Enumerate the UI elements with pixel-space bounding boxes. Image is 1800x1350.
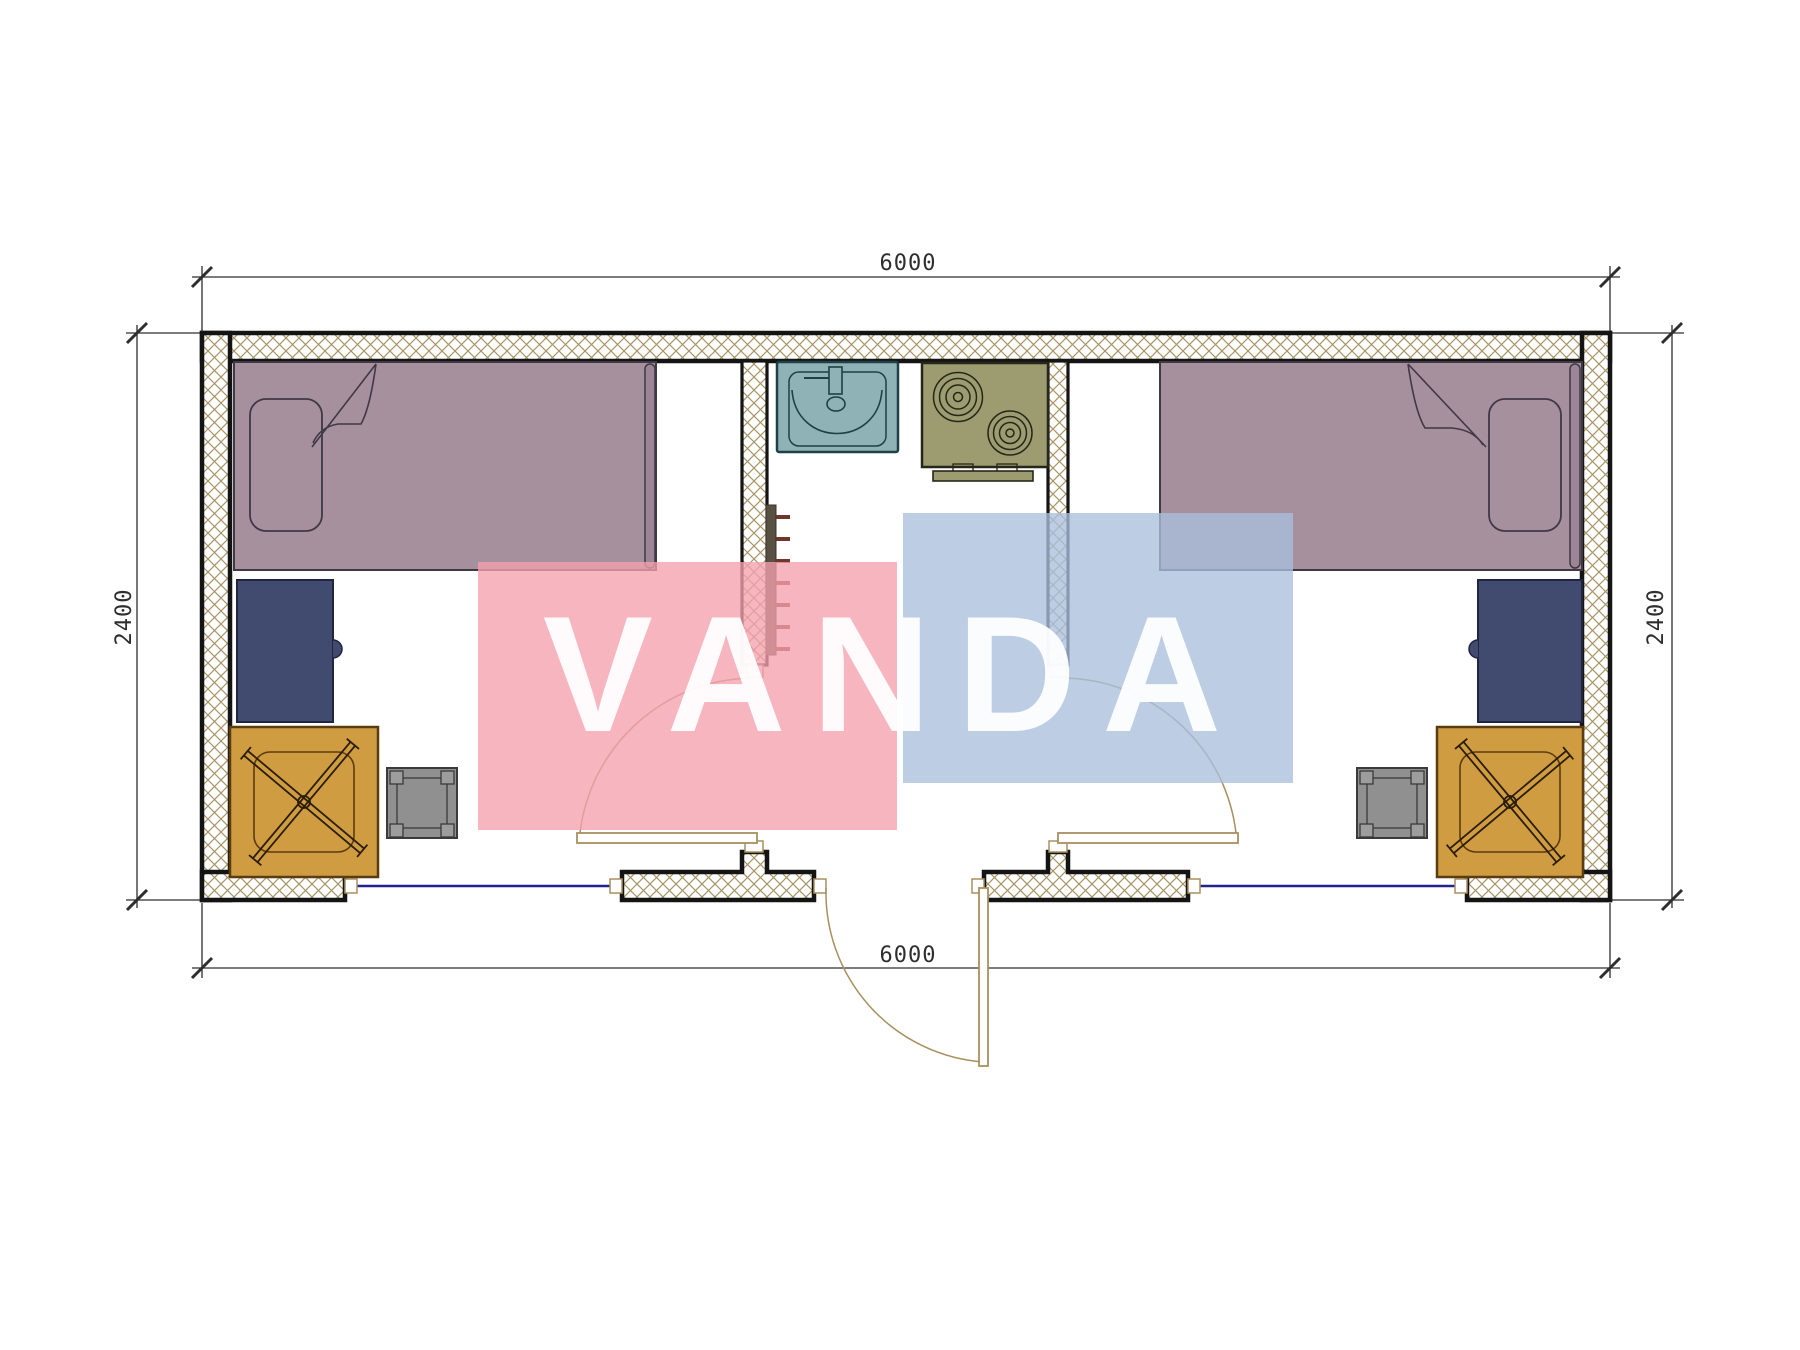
entrance-door-leaf	[979, 888, 988, 1066]
desk-right-knob	[1469, 640, 1478, 658]
dim-label-left: 2400	[112, 589, 137, 646]
bed-left-pillow	[250, 399, 322, 531]
entrance-door-swing-arc	[826, 888, 984, 1062]
wall-bottom-right-segment	[984, 852, 1188, 900]
wall-right	[1582, 333, 1610, 900]
dimension-top: 6000	[192, 251, 1620, 333]
bed-right-pillow	[1489, 399, 1561, 531]
dimension-right: 2400	[1610, 323, 1684, 910]
floor-plan-canvas: 6000 6000 2400 2400	[0, 0, 1800, 1350]
wall-bottom-left-segment	[622, 852, 814, 900]
dim-label-top: 6000	[880, 251, 937, 276]
stove-handle	[933, 471, 1033, 481]
window-jamb	[345, 879, 357, 893]
desk-right	[1469, 580, 1582, 722]
watermark-text: VANDA	[450, 592, 1340, 802]
dimension-left: 2400	[112, 323, 202, 910]
office-chair-left	[197, 695, 411, 909]
stool-right	[1357, 768, 1427, 838]
bed-left	[234, 362, 656, 570]
wall-top	[202, 333, 1610, 361]
right-room-door-leaf	[1058, 833, 1238, 843]
windows	[345, 879, 1467, 893]
stove	[922, 363, 1048, 481]
window-jamb	[1188, 879, 1200, 893]
left-room-door-leaf	[577, 833, 757, 843]
wall-left	[202, 333, 230, 900]
desk-left-knob	[333, 640, 342, 658]
sink	[777, 362, 898, 452]
dim-label-right: 2400	[1644, 589, 1669, 646]
faucet	[829, 367, 842, 394]
window-jamb	[1455, 879, 1467, 893]
door-jamb	[814, 879, 826, 893]
dimension-bottom: 6000	[192, 903, 1620, 978]
desk-left	[237, 580, 342, 722]
dim-label-bottom: 6000	[880, 943, 937, 968]
bed-right-headboard	[1570, 364, 1580, 568]
stool-left	[387, 768, 457, 838]
bed-left-footboard	[645, 364, 655, 568]
window-jamb	[610, 879, 622, 893]
